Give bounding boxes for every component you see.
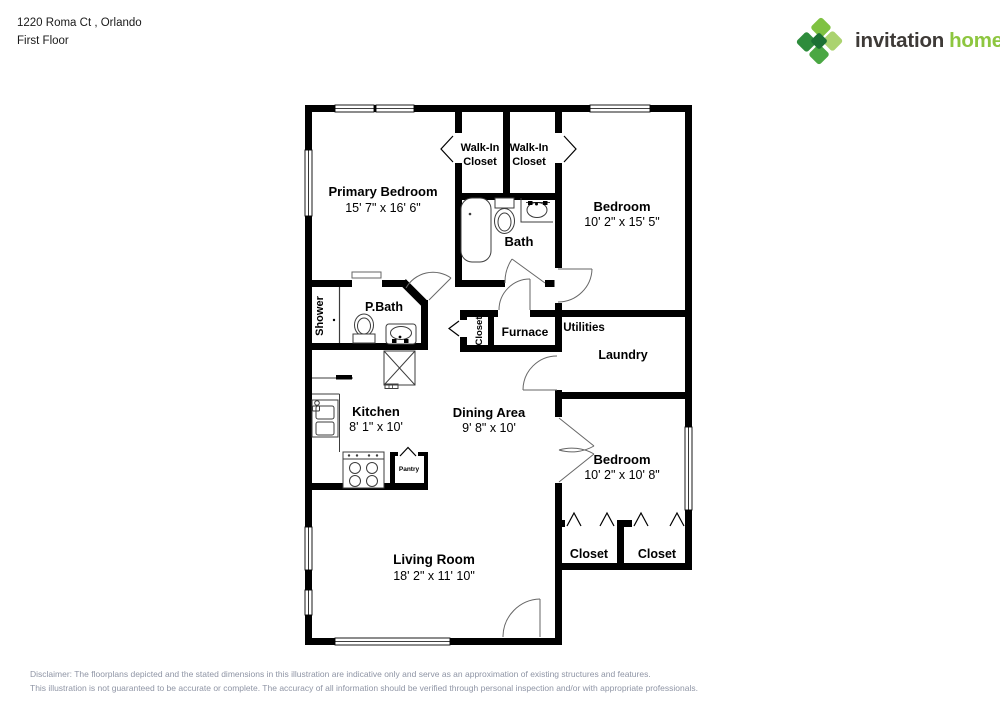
window [305, 590, 312, 615]
window [335, 105, 374, 112]
bedroom-lower-label: Bedroom [593, 452, 650, 467]
logo-word-homes: homes [949, 29, 1000, 52]
window [335, 638, 450, 645]
door-arc [503, 599, 540, 637]
bedroom-upper-label: Bedroom [593, 199, 650, 214]
window [305, 527, 312, 570]
primary-bedroom-dims: 15' 7" x 16' 6" [345, 201, 421, 215]
furnace-label: Furnace [502, 325, 549, 339]
address-line: 1220 Roma Ct , Orlando [17, 14, 142, 32]
pbath-toilet-icon [353, 314, 375, 343]
bath-sink-icon [521, 198, 553, 222]
refrigerator-icon [384, 351, 415, 389]
walk-in-closet-left-label-1: Walk-In [461, 142, 500, 154]
disclaimer: Disclaimer: The floorplans depicted and … [30, 667, 698, 695]
kitchen-sink-icon [312, 400, 338, 437]
floor-label: First Floor [17, 32, 142, 50]
hall-closet-label: Closet [474, 316, 485, 346]
walk-in-closet-right-label-1: Walk-In [510, 142, 549, 154]
primary-bath-label: P.Bath [365, 300, 403, 314]
invitation-homes-logo: invitationhomes™ [795, 16, 1000, 66]
toilet-icon [495, 198, 515, 234]
logo-word-invitation: invitation [855, 29, 944, 52]
floor-plan: Primary Bedroom 15' 7" x 16' 6" Walk-In … [295, 95, 700, 655]
bathtub-icon [461, 198, 491, 262]
living-room-dims: 18' 2" x 11' 10" [393, 569, 475, 583]
dining-area-dims: 9' 8" x 10' [462, 421, 516, 435]
utilities-label: Utilities [563, 322, 605, 334]
stove-icon [343, 452, 384, 488]
window [305, 150, 312, 216]
window [685, 427, 692, 510]
logo-pinwheel-icon [795, 16, 845, 66]
pantry-label: Pantry [399, 466, 420, 473]
bath-label: Bath [505, 234, 534, 249]
disclaimer-line-2: This illustration is not guaranteed to b… [30, 681, 698, 695]
door-arc [523, 356, 557, 390]
kitchen-label: Kitchen [352, 404, 400, 419]
walk-in-closet-left-label-2: Closet [463, 156, 497, 168]
window [590, 105, 650, 112]
closet-bottom-right-label: Closet [638, 547, 677, 561]
disclaimer-line-1: Disclaimer: The floorplans depicted and … [30, 667, 698, 681]
walk-in-closet-right-label-2: Closet [512, 156, 546, 168]
closet-bottom-left-label: Closet [570, 547, 609, 561]
door-arc [558, 269, 592, 302]
door-arc [559, 418, 594, 452]
dining-area-label: Dining Area [453, 405, 526, 420]
pbath-sink-icon [386, 324, 416, 344]
kitchen-dims: 8' 1" x 10' [349, 420, 403, 434]
bedroom-lower-dims: 10' 2" x 10' 8" [584, 468, 660, 482]
shower-enclosure-icon [333, 287, 340, 343]
living-room-label: Living Room [393, 552, 475, 567]
open-door-leaf [352, 272, 381, 278]
primary-bedroom-label: Primary Bedroom [328, 184, 437, 199]
bedroom-upper-dims: 10' 2" x 15' 5" [584, 215, 660, 229]
shower-label: Shower [314, 295, 326, 335]
logo-wordmark: invitationhomes™ [855, 29, 1000, 53]
laundry-label: Laundry [598, 348, 647, 362]
header: 1220 Roma Ct , Orlando First Floor [17, 14, 142, 50]
window [376, 105, 414, 112]
